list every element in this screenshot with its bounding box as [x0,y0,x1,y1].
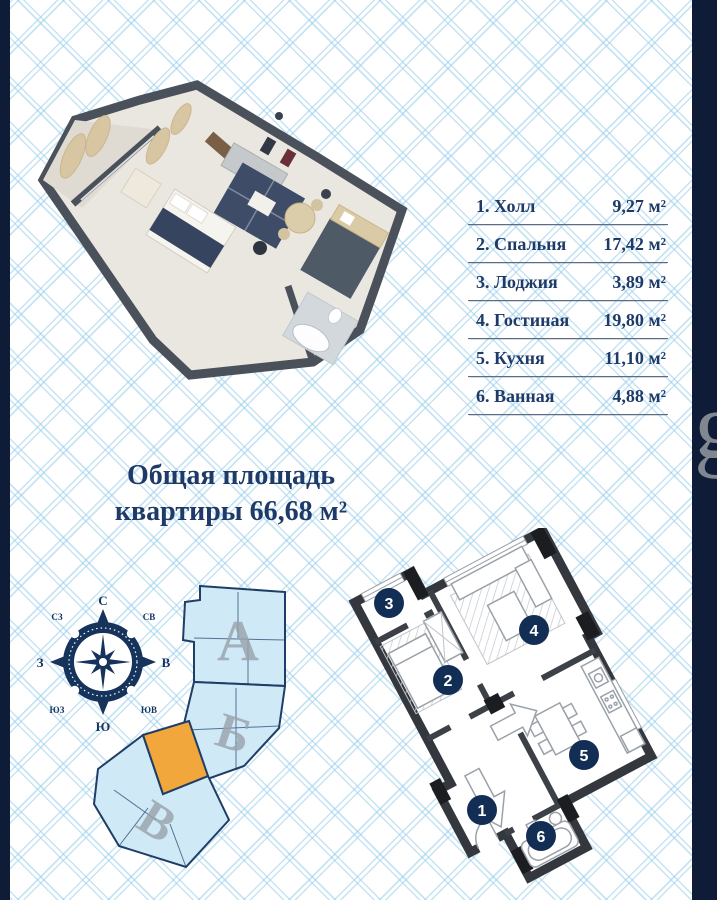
3d-chair [278,228,290,240]
room-area: 9,27 м² [612,196,666,217]
3d-round-table [285,203,315,233]
room-area: 19,80 м² [603,310,666,331]
3d-plant [321,189,331,199]
compass-dot-nw [70,629,79,638]
room-area: 17,42 м² [603,234,666,255]
room-badge-6-number: 6 [537,829,546,846]
list-item: 5. Кухня 11,10 м² [468,348,668,377]
room-badge-2-number: 2 [444,673,453,690]
room-label: 3. Лоджия [476,272,558,293]
room-area-list: 1. Холл 9,27 м² 2. Спальня 17,42 м² 3. Л… [468,196,668,424]
building-site-plan: А Б В [86,580,306,890]
left-navy-bar [0,0,10,900]
3d-chair [311,199,323,211]
compass-dot-sw [70,686,79,695]
list-item: 1. Холл 9,27 м² [468,196,668,225]
room-area: 3,89 м² [612,272,666,293]
room-badge-1-number: 1 [478,803,487,820]
3d-plant [275,112,283,120]
list-item: 3. Лоджия 3,89 м² [468,272,668,301]
room-badge-4-number: 4 [530,623,539,640]
total-area-title: Общая площадь квартиры 66,68 м² [95,458,367,530]
compass-label-w: З [37,655,44,670]
room-area: 11,10 м² [604,348,666,369]
room-label: 4. Гостиная [476,310,569,331]
list-item: 4. Гостиная 19,80 м² [468,310,668,339]
3d-stool [253,241,267,255]
site-letter-a: А [217,608,259,673]
flyer-page: g [0,0,717,900]
apartment-3d-render [26,74,441,409]
floor-plan-2d: 3 2 4 5 1 6 [320,528,710,890]
room-area: 4,88 м² [612,386,666,407]
list-item: 2. Спальня 17,42 м² [468,234,668,263]
list-item: 6. Ванная 4,88 м² [468,386,668,415]
room-label: 5. Кухня [476,348,545,369]
room-badge-3-number: 3 [385,596,394,613]
room-label: 6. Ванная [476,386,555,407]
total-area-line2: квартиры 66,68 м² [95,494,367,530]
room-label: 1. Холл [476,196,535,217]
watermark-letter: g [694,378,717,474]
right-navy-bar: g [692,0,717,900]
total-area-line1: Общая площадь [95,458,367,494]
room-label: 2. Спальня [476,234,566,255]
compass-label-sw: ЮЗ [50,705,65,715]
room-badge-5-number: 5 [580,748,589,765]
compass-label-nw: СЗ [51,612,62,622]
